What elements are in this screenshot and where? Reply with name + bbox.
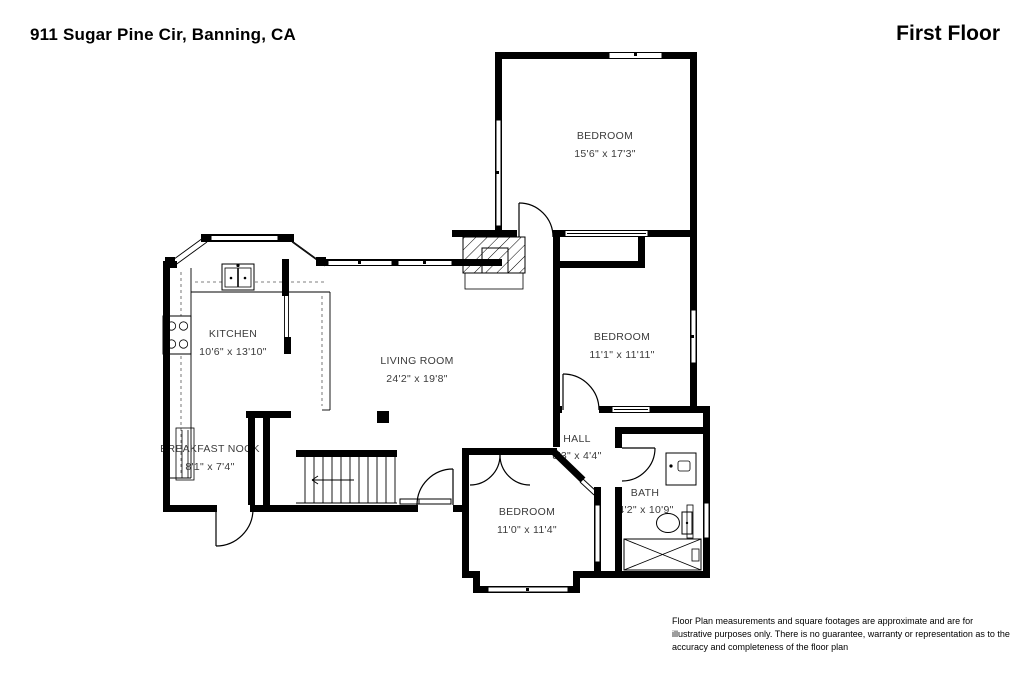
bath-name-label: BATH	[631, 487, 659, 499]
bedroom2-door	[563, 374, 599, 410]
bathtub-icon	[624, 539, 701, 570]
bath-door	[622, 448, 655, 481]
hall-name-label: HALL	[563, 433, 590, 445]
stairs	[296, 457, 397, 503]
living-room-dims-label: 24'2" x 19'8"	[386, 373, 448, 385]
bedroom2-dims-label: 11'1" x 11'11"	[589, 349, 654, 361]
bedroom3-dims-label: 11'0" x 11'4"	[497, 524, 557, 536]
kitchen-sink-icon	[222, 264, 254, 290]
breakfast-nook-dims-label: 8'1" x 7'4"	[185, 461, 234, 473]
support-pillar	[377, 411, 389, 423]
disclaimer-text: Floor Plan measurements and square foota…	[672, 615, 1010, 654]
bedroom1-dims-label: 15'6" x 17'3"	[574, 148, 636, 160]
living-room-name-label: LIVING ROOM	[380, 355, 453, 367]
kitchen-name-label: KITCHEN	[209, 328, 257, 340]
sliding-closet-doors-2	[612, 407, 650, 413]
kitchen-dims-label: 10'6" x 13'10"	[199, 346, 267, 358]
stairs-direction-arrow	[312, 476, 354, 484]
floor-plan-drawing: BEDROOM 15'6" x 17'3" BEDROOM 11'1" x 11…	[0, 0, 1024, 683]
bedroom2-name-label: BEDROOM	[594, 331, 650, 343]
bedroom3-name-label: BEDROOM	[499, 506, 555, 518]
bath-dims-label: 4'2" x 10'9"	[618, 504, 673, 516]
bath-vanity-icon	[666, 453, 696, 485]
floor-plan-page: 911 Sugar Pine Cir, Banning, CA First Fl…	[0, 0, 1024, 683]
bedroom3-closet-doors	[470, 455, 530, 485]
breakfast-nook-name-label: BREAKFAST NOOK	[160, 443, 260, 455]
sliding-closet-doors-1	[565, 231, 648, 237]
bedroom1-door	[519, 203, 553, 237]
bedroom1-name-label: BEDROOM	[577, 130, 633, 142]
nook-exterior-door	[216, 509, 253, 546]
